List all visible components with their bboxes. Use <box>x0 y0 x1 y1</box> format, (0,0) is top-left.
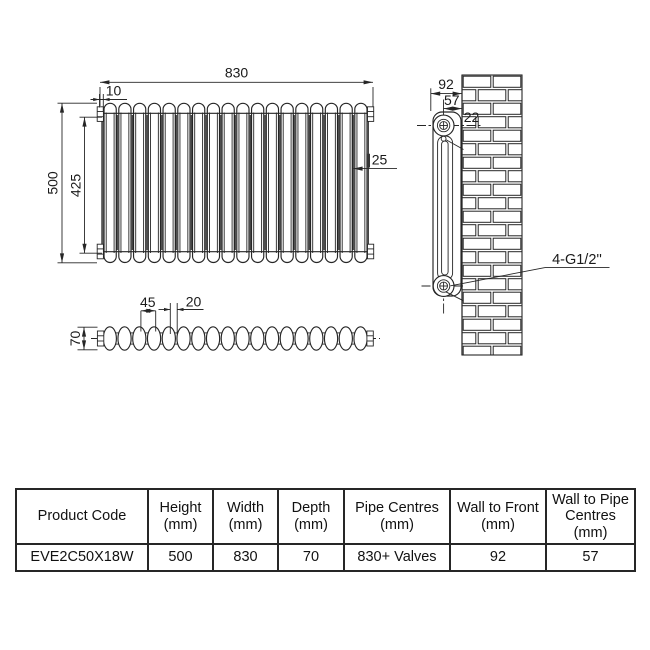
dim-wall-to-pipe: 57 <box>444 92 463 114</box>
dim-end-cap-label: 10 <box>106 83 122 99</box>
dim-overall-width-label: 830 <box>225 65 249 81</box>
radiator-technical-drawing: 830 10 500 425 ∥25 <box>0 0 650 650</box>
spec-table-value-row: EVE2C50X18W 500 830 70 830+ Valves 92 57 <box>16 544 635 571</box>
end-plug-bottom-right <box>368 244 374 259</box>
end-plug-top-left <box>97 107 103 122</box>
value-wall-to-front: 92 <box>450 544 546 571</box>
value-pipe-centres: 830+ Valves <box>344 544 450 571</box>
value-wall-to-pipe-centres: 57 <box>546 544 635 571</box>
header-product-code: Product Code <box>16 489 148 544</box>
header-height: Height (mm) <box>148 489 213 544</box>
dim-wall-to-front-label: 92 <box>438 76 454 92</box>
value-height: 500 <box>148 544 213 571</box>
header-pipe-centres: Pipe Centres (mm) <box>344 489 450 544</box>
dim-column-diameter-label: ∥25 <box>365 152 388 168</box>
dim-overall-width: 830 <box>100 65 373 107</box>
header-wall-to-front: Wall to Front (mm) <box>450 489 546 544</box>
spec-table-header-row: Product Code Height (mm) Width (mm) Dept… <box>16 489 635 544</box>
dim-wall-to-pipe-label: 57 <box>444 92 460 108</box>
end-plug-top-right <box>368 107 374 122</box>
header-width: Width (mm) <box>213 489 278 544</box>
dim-section-pitch-label: 45 <box>140 294 156 310</box>
front-view: 830 10 500 425 ∥25 <box>45 65 398 263</box>
dim-section-joint-label: 20 <box>186 293 202 309</box>
header-depth: Depth (mm) <box>278 489 344 544</box>
plan-end-cap-left <box>97 331 103 346</box>
dim-vertical-pipe-centres: 425 <box>68 117 103 253</box>
spec-table: Product Code Height (mm) Width (mm) Dept… <box>15 488 636 572</box>
dim-section-pitch: 45 <box>140 294 156 332</box>
top-view: 70 45 20 <box>67 293 380 350</box>
dim-bracket-label: 22 <box>464 109 480 125</box>
dim-vertical-pipe-centres-label: 425 <box>68 174 84 198</box>
plan-end-cap-right <box>367 331 373 346</box>
header-wall-to-pipe-centres: Wall to Pipe Centres (mm) <box>546 489 635 544</box>
dim-overall-height-label: 500 <box>45 171 61 195</box>
value-depth: 70 <box>278 544 344 571</box>
end-plug-bottom-left <box>97 244 103 259</box>
value-width: 830 <box>213 544 278 571</box>
pipe-connections-label: 4-G1/2'' <box>552 252 602 268</box>
dim-depth-label: 70 <box>67 331 83 347</box>
value-product-code: EVE2C50X18W <box>16 544 148 571</box>
side-view: 92 57 22 4-G1/2'' <box>417 75 610 355</box>
